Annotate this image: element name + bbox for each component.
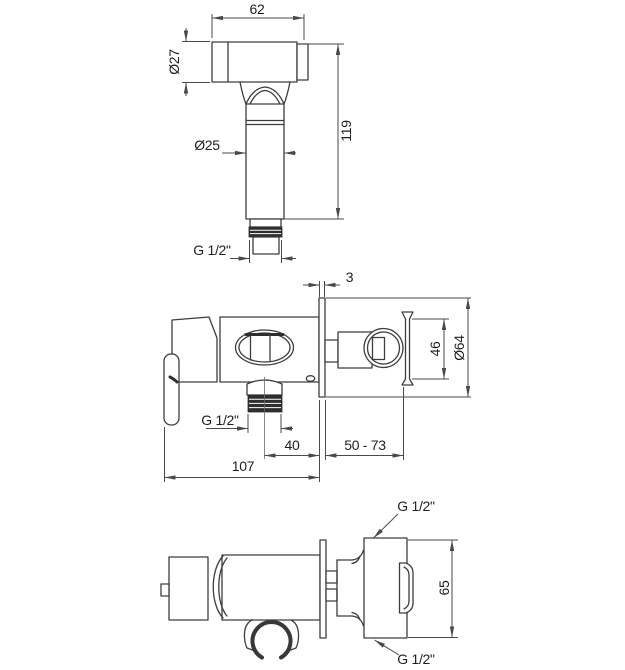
handset-thread <box>249 227 282 237</box>
handset-connector-neck <box>250 219 281 227</box>
lever-knob <box>161 584 169 596</box>
wall-plate-side <box>319 298 325 397</box>
mixer-body-top <box>222 555 320 620</box>
handset-neck-left <box>240 82 246 104</box>
connector-stem <box>326 571 337 583</box>
holder-ring-top-view <box>253 622 291 657</box>
body-screw-detail <box>306 376 314 382</box>
leader-line <box>374 514 399 538</box>
handset-neck-right <box>284 82 290 104</box>
dim-label-plate-thickness: 3 <box>346 269 354 285</box>
dim-label-depth-range: 50 - 73 <box>344 437 386 453</box>
dim-label-body-height: 65 <box>436 580 452 595</box>
dim-label-total-width: 107 <box>232 458 255 474</box>
handset-head-end-cap <box>297 44 308 80</box>
dim-label-handle-diameter: Ø25 <box>194 137 220 153</box>
fixture-technical-drawing: 62 Ø27 119 Ø25 G 1/2" <box>0 0 625 670</box>
dim-label-outlet-thread: G 1/2" <box>201 412 239 428</box>
mixer-top-view: 65 G 1/2" G 1/2" <box>161 498 458 667</box>
handset-connector-tip <box>253 237 279 254</box>
leader-line <box>375 640 400 655</box>
handset-handle <box>246 104 284 219</box>
dim-label-holder-height: 46 <box>427 341 443 356</box>
dim-label-bottom-inlet-thread: G 1/2" <box>397 651 435 667</box>
dim-label-total-length: 119 <box>338 120 354 142</box>
dim-label-plate-diameter: Ø64 <box>451 335 467 361</box>
mixer-lever-top <box>169 557 208 620</box>
connector-stem <box>326 589 337 601</box>
holder-ring-slot <box>373 338 385 360</box>
mixer-lever-handle <box>164 354 179 425</box>
valve-tab-detail <box>400 563 414 613</box>
mixer-side-view: 3 Ø64 46 G 1/2" 40 50 - 73 107 <box>164 269 471 482</box>
dim-label-head-width: 62 <box>250 1 265 17</box>
escutcheon-side <box>402 312 413 385</box>
dim-label-outlet-to-wall: 40 <box>285 437 300 453</box>
dim-label-top-inlet-thread: G 1/2" <box>397 498 435 514</box>
holder-stem <box>325 340 338 362</box>
dim-label-head-diameter: Ø27 <box>166 49 182 75</box>
hand-shower-front-view: 62 Ø27 119 Ø25 G 1/2" <box>166 1 354 263</box>
technical-drawing-page: 62 Ø27 119 Ø25 G 1/2" <box>0 0 625 670</box>
handset-head <box>212 42 297 82</box>
wall-plate-top <box>320 540 326 638</box>
dim-label-connector-thread: G 1/2" <box>193 242 231 258</box>
